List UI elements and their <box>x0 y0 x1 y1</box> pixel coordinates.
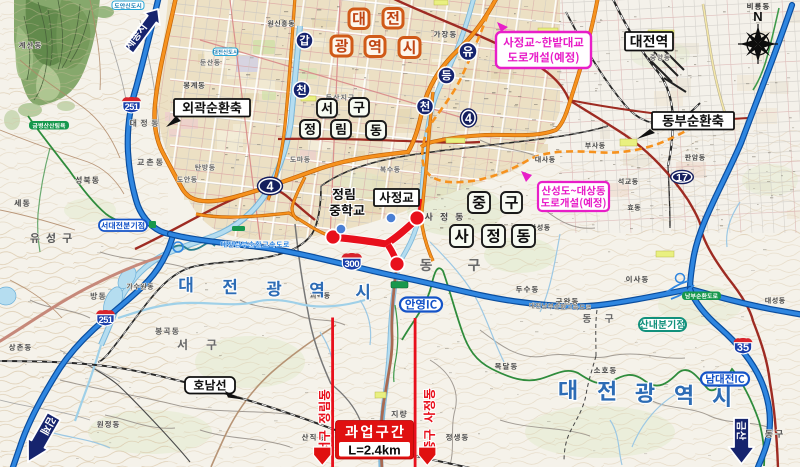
svg-text:251: 251 <box>125 102 139 112</box>
svg-text:17: 17 <box>676 172 688 184</box>
svg-text:4: 4 <box>267 180 274 194</box>
svg-text:4: 4 <box>465 112 472 126</box>
svg-text:300: 300 <box>345 259 360 270</box>
svg-text:N: N <box>753 9 762 24</box>
svg-text:L=2.4km: L=2.4km <box>348 442 400 457</box>
svg-text:251: 251 <box>99 315 113 325</box>
svg-text:35: 35 <box>737 342 749 354</box>
